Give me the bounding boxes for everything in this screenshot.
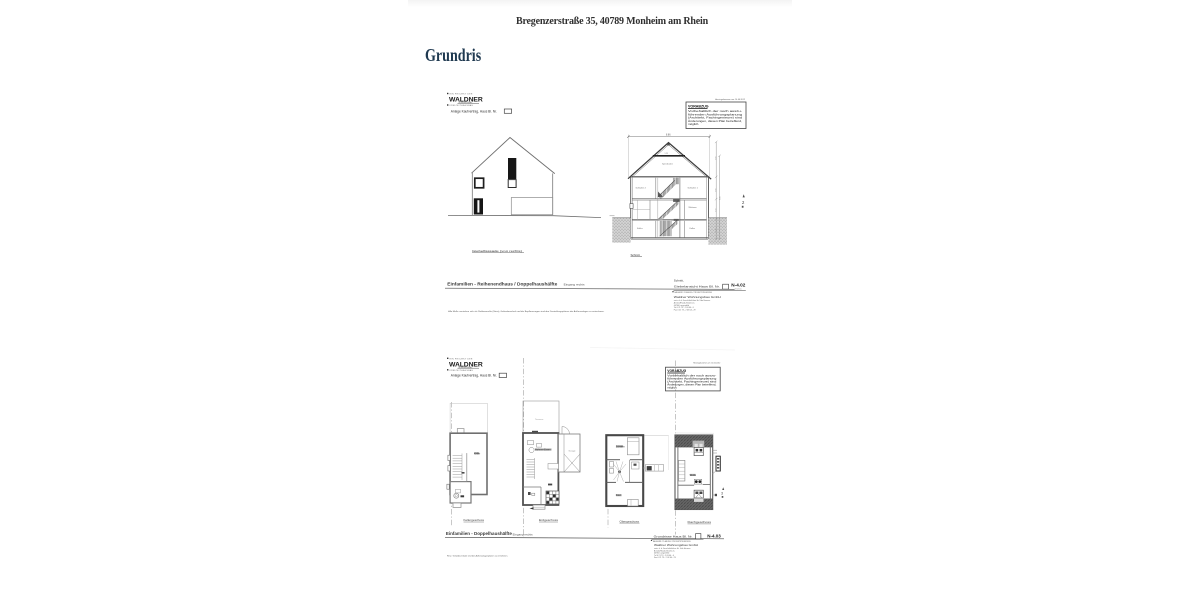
svg-text:Keller: Keller: [637, 227, 643, 230]
svg-text:Dachgeschoss: Dachgeschoss: [688, 520, 712, 524]
svg-text:N-4.03: N-4.03: [707, 534, 721, 539]
svg-text:Keller: Keller: [474, 452, 480, 455]
svg-text:Schlafen: Schlafen: [616, 446, 626, 448]
svg-text:Hinw.: Geländeverläufe sind de: Hinw.: Geländeverläufe sind den Außenanl…: [447, 554, 508, 557]
svg-text:2: 2: [742, 200, 745, 205]
svg-text:VORABZUG: VORABZUG: [688, 105, 709, 109]
svg-text:N-4.02: N-4.02: [731, 282, 746, 287]
svg-text:im Umriss: im Umriss: [735, 288, 742, 290]
svg-text:2.60: 2.60: [716, 189, 718, 193]
svg-text:Eingang rechts: Eingang rechts: [513, 533, 534, 537]
svg-text:Studio: Studio: [690, 474, 697, 477]
svg-text:Einfamilien - Reihenendhaus /: Einfamilien - Reihenendhaus / Doppelhaus…: [447, 281, 557, 286]
svg-text:Schlafen 2: Schlafen 2: [636, 188, 647, 190]
svg-text:FREIZEITHAUSBAU: FREIZEITHAUSBAU: [450, 369, 474, 372]
svg-text:BAUHERR / PLANUNG / PROJEKTSTE: BAUHERR / PLANUNG / PROJEKTSTEUERUNG: [675, 291, 713, 294]
svg-text:Giebelansicht Haus Bl. Nr.: Giebelansicht Haus Bl. Nr.: [674, 285, 720, 289]
svg-text:Hereingekommen am: 14.06.2012: Hereingekommen am: 14.06.2012: [693, 361, 721, 364]
svg-text:Grundrisse Haus Bl. Nr.: Grundrisse Haus Bl. Nr.: [654, 534, 693, 538]
svg-text:Waldner Wohnungsbau GmbH: Waldner Wohnungsbau GmbH: [674, 295, 721, 299]
svg-text:Obergeschoss: Obergeschoss: [620, 519, 640, 523]
svg-text:Terrasse: Terrasse: [535, 418, 544, 421]
svg-text:Alle Maße verstehen sich als R: Alle Maße verstehen sich als Rohbaumaße …: [448, 310, 604, 313]
svg-text:Wohnen: Wohnen: [689, 207, 698, 209]
svg-text:Schnitt,: Schnitt,: [674, 279, 684, 283]
svg-text:1.25: 1.25: [665, 153, 669, 155]
svg-text:2.30: 2.30: [716, 229, 718, 233]
svg-text:3: 3: [721, 492, 723, 496]
svg-text:Spitzboden: Spitzboden: [662, 162, 674, 165]
svg-text:Keller: Keller: [690, 227, 696, 230]
svg-text:Schnitt: Schnitt: [631, 253, 640, 257]
svg-text:Eingang rechts: Eingang rechts: [564, 282, 586, 286]
svg-text:Kellergeschoss: Kellergeschoss: [464, 518, 485, 522]
svg-text:Fax 0 21 73 - 2 03 64 - 29: Fax 0 21 73 - 2 03 64 - 29: [654, 557, 676, 559]
svg-text:8.80: 8.80: [720, 197, 722, 201]
svg-text:2.60: 2.60: [716, 157, 718, 161]
svg-text:Einfamilien - Doppelhaushälfte: Einfamilien - Doppelhaushälfte: [446, 531, 512, 536]
svg-text:Garage: Garage: [569, 449, 577, 452]
svg-text:Wohnen-Essen: Wohnen-Essen: [535, 450, 551, 452]
svg-text:Schlafen 1: Schlafen 1: [688, 188, 699, 190]
svg-text:Erdgeschoss: Erdgeschoss: [539, 518, 559, 522]
svg-text:8.66: 8.66: [666, 135, 671, 137]
svg-text:Anlage Kaufvertrag, Haus Bl. N: Anlage Kaufvertrag, Haus Bl. Nr.: [451, 374, 497, 378]
svg-text:EIN PROJEKT DER: EIN PROJEKT DER: [450, 94, 473, 96]
svg-text:FREIZEITHAUSBAU: FREIZEITHAUSBAU: [450, 104, 474, 107]
svg-text:Fax 0 21 73 - 2 03 64 - 29: Fax 0 21 73 - 2 03 64 - 29: [674, 310, 696, 312]
svg-text:EIN PROJEKT DER: EIN PROJEKT DER: [450, 358, 473, 360]
svg-text:Waldner Wohnungsbau GmbH: Waldner Wohnungsbau GmbH: [654, 543, 698, 547]
svg-text:VORABZUG: VORABZUG: [667, 369, 686, 373]
svg-text:Anlage Kaufvertrag, Haus Bl. N: Anlage Kaufvertrag, Haus Bl. Nr.: [451, 109, 497, 113]
svg-text:möglich.: möglich.: [667, 385, 677, 389]
svg-text:Hereingekommen am: 14.06.2012: Hereingekommen am: 14.06.2012: [715, 98, 746, 101]
svg-text:Giebelfassade (von rechts): Giebelfassade (von rechts): [472, 249, 522, 253]
svg-text:2.50: 2.50: [716, 209, 718, 213]
svg-text:Kind: Kind: [616, 495, 621, 497]
svg-text:möglich.: möglich.: [688, 122, 699, 126]
